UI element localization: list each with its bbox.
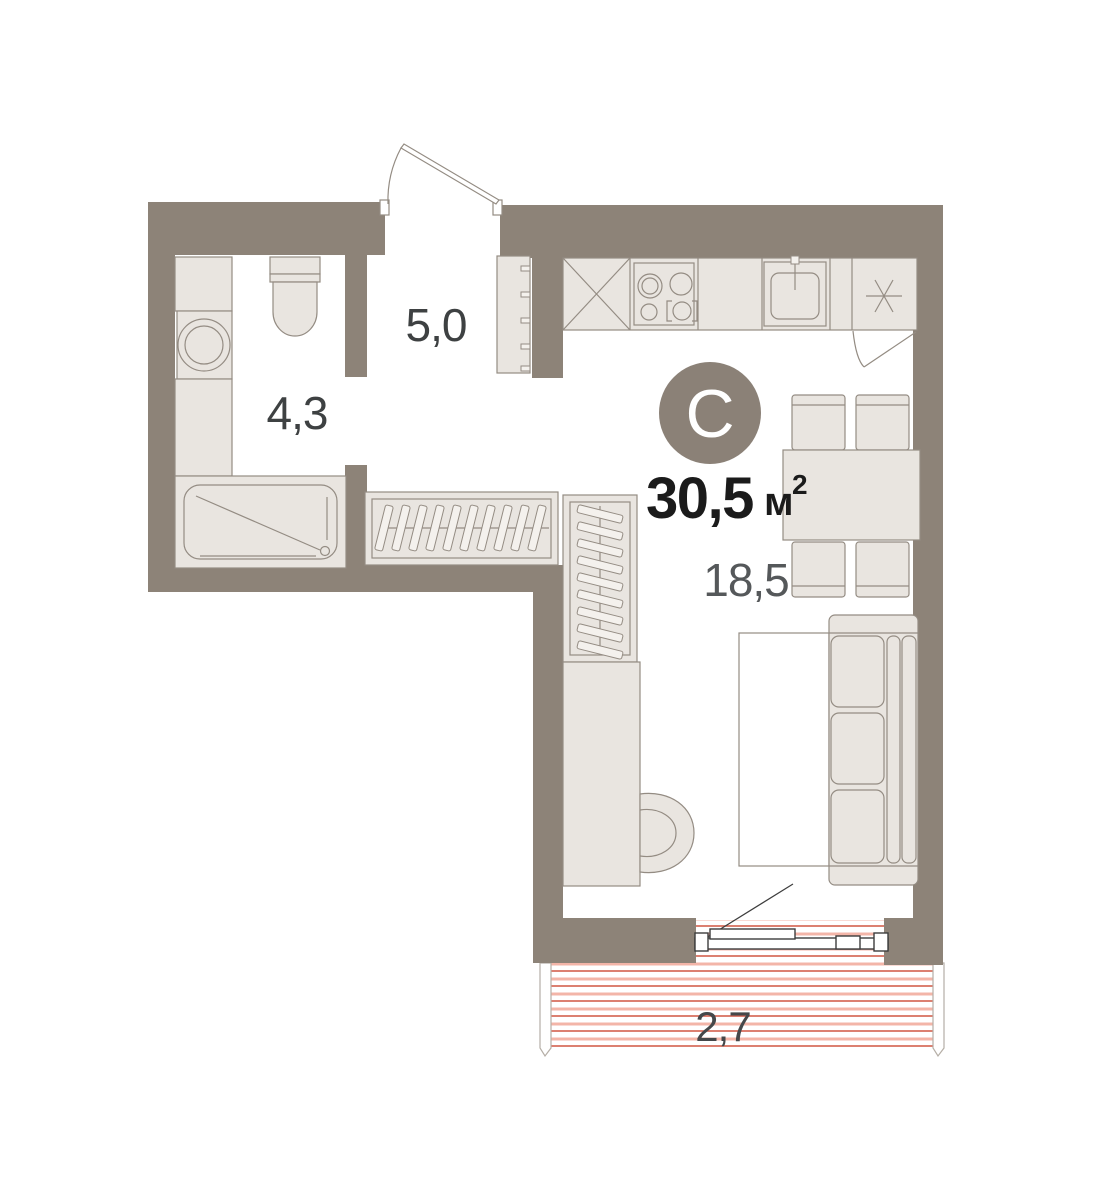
floor-plan: 4,3 5,0 xyxy=(0,0,1095,1200)
washing-machine xyxy=(177,311,232,379)
wall-bath-divider-bottom xyxy=(345,465,367,568)
bathroom: 4,3 xyxy=(175,257,346,568)
balcony-area-label: 2,7 xyxy=(695,1003,750,1050)
bed xyxy=(739,633,829,866)
entry-door xyxy=(380,144,502,215)
window-mullion xyxy=(836,936,860,949)
hallway-area-label: 5,0 xyxy=(406,299,467,351)
bath-counter xyxy=(175,257,232,311)
wall-bath-divider-top xyxy=(345,255,367,377)
wall-top-right xyxy=(500,205,940,258)
toilet xyxy=(270,257,320,336)
total-area-sup: 2 xyxy=(792,469,808,500)
chair xyxy=(856,395,909,450)
wall-bottom-right xyxy=(884,918,943,965)
total-area-value: 30,5 xyxy=(646,466,753,531)
chair xyxy=(792,542,845,597)
door-leaf xyxy=(401,144,499,204)
wall-left xyxy=(148,202,175,592)
chair xyxy=(856,542,909,597)
apartment-type-badge: С xyxy=(659,362,761,464)
bathtub xyxy=(175,476,346,568)
balcony-rail-right xyxy=(933,963,944,1056)
wardrobe-hallway xyxy=(365,492,558,565)
wall-bathroom-bottom xyxy=(148,565,540,592)
living-room: 18,5 С 30,5 м 2 xyxy=(563,362,920,886)
sofa xyxy=(829,615,918,885)
wall-hall-kitchen-divider xyxy=(532,248,563,378)
balcony-rail-left xyxy=(540,963,551,1056)
floor-plan-drawing: 4,3 5,0 xyxy=(0,0,1095,1200)
desk-chair xyxy=(640,793,694,872)
bathroom-area-label: 4,3 xyxy=(267,387,328,439)
chair xyxy=(792,395,845,450)
wall-living-left xyxy=(533,565,563,963)
bath-cabinet xyxy=(175,379,232,476)
desk xyxy=(563,662,640,886)
hallway: 5,0 xyxy=(365,256,558,565)
wardrobe-living xyxy=(563,495,637,662)
door-swing-arc xyxy=(388,148,401,204)
window-mullion xyxy=(874,933,888,951)
kitchen-counter xyxy=(563,258,917,330)
balcony-window xyxy=(695,884,888,951)
total-area-unit: м xyxy=(764,480,794,524)
wall-bottom-left xyxy=(533,918,696,963)
type-letter: С xyxy=(685,376,734,452)
window-sliding-leaf xyxy=(710,929,795,939)
utility-door xyxy=(853,331,916,367)
window-mullion xyxy=(695,933,708,951)
wall-top-left xyxy=(148,202,385,255)
living-area-label: 18,5 xyxy=(703,554,789,606)
coat-rack xyxy=(497,256,530,373)
kitchen xyxy=(563,256,917,367)
